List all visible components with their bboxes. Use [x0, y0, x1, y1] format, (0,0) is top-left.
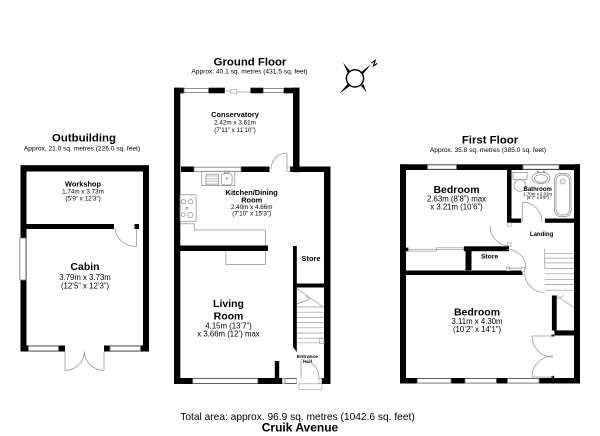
svg-text:Cabin: Cabin [70, 261, 99, 273]
svg-text:Landing: Landing [530, 232, 554, 238]
svg-text:(7’11” x 11’10”): (7’11” x 11’10”) [214, 127, 255, 134]
svg-text:Outbuilding: Outbuilding [52, 133, 116, 145]
svg-text:Living: Living [213, 298, 244, 310]
svg-text:(12’5” x 12’3”): (12’5” x 12’3”) [61, 282, 110, 291]
svg-text:Store: Store [302, 254, 321, 263]
svg-text:First Floor: First Floor [462, 135, 519, 147]
svg-text:Approx. 40.1 sq. metres (431.5: Approx. 40.1 sq. metres (431.5 sq. feet) [191, 69, 307, 76]
svg-text:(5’9” x 12’3”): (5’9” x 12’3”) [65, 196, 100, 203]
svg-text:(7’10” x 15’3”): (7’10” x 15’3”) [232, 211, 271, 218]
svg-text:Cruik Avenue: Cruik Avenue [262, 421, 339, 435]
svg-text:Approx. 35.8 sq. metres (385.0: Approx. 35.8 sq. metres (385.0 sq. feet) [430, 147, 546, 154]
svg-text:x 3.66m (12’) max: x 3.66m (12’) max [197, 329, 259, 338]
svg-text:Approx. 21.0 sq. metres (226.0: Approx. 21.0 sq. metres (226.0 sq. feet) [24, 145, 140, 152]
svg-text:(10’2” x 14’1”): (10’2” x 14’1”) [453, 325, 502, 334]
svg-text:2.42m x 3.61m: 2.42m x 3.61m [214, 120, 256, 127]
svg-text:Conservatory: Conservatory [211, 110, 260, 119]
svg-text:x 3.21m (10’6”): x 3.21m (10’6”) [430, 203, 483, 212]
svg-text:(5’7” x 6’8”): (5’7” x 6’8”) [527, 195, 550, 200]
svg-text:Workshop: Workshop [65, 180, 101, 189]
svg-text:Ground Floor: Ground Floor [214, 57, 287, 69]
svg-text:Store: Store [481, 253, 498, 260]
svg-text:1.74m x 3.73m: 1.74m x 3.73m [62, 189, 104, 196]
